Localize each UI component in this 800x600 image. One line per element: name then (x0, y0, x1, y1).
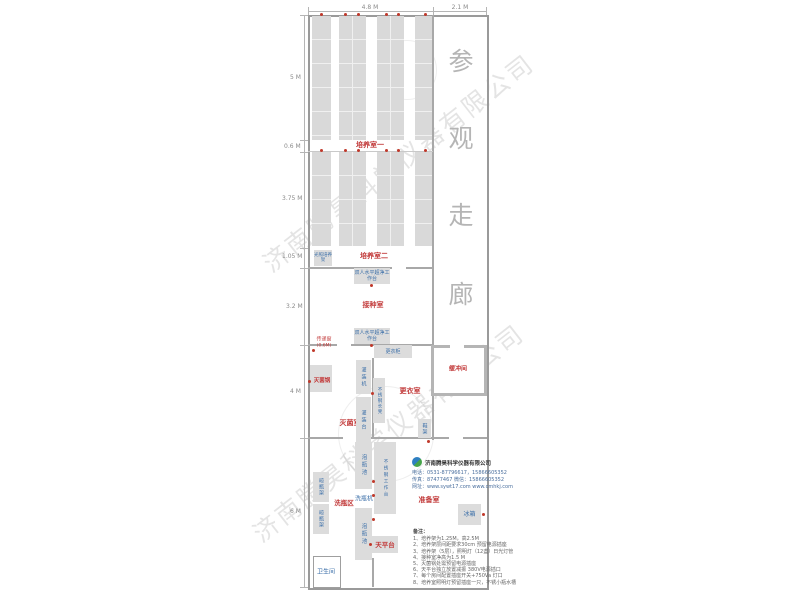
marker-dot (397, 13, 400, 16)
shelf-rack (377, 152, 404, 246)
stainless-worktable-box: 不锈钢工作台 (374, 442, 396, 514)
room-label-culture2: 培养室二 (360, 251, 388, 261)
door-gap (337, 343, 351, 347)
drying-rack-2: 晾瓶架 (313, 504, 329, 534)
marker-dot (308, 380, 311, 383)
fridge-box: 冰箱 (458, 504, 481, 525)
marker-dot (385, 149, 388, 152)
marker-dot (482, 513, 485, 516)
dim-top-left-label: 4.8 M (360, 4, 381, 11)
dim-top-right-label: 2.1 M (450, 4, 471, 11)
marker-dot (357, 13, 360, 16)
dim-tick (300, 438, 308, 439)
dim-left-7: 6 M (290, 508, 301, 515)
dim-tick (300, 248, 308, 249)
door-gap (450, 387, 464, 393)
pass-window-label: 传递窗 (316, 336, 331, 343)
laminar-flow-bench-1: 双人水平超净工作台 (354, 268, 390, 284)
dim-tick (486, 7, 487, 15)
corridor-label-char: 参 (448, 42, 473, 78)
marker-dot (320, 13, 323, 16)
marker-dot (357, 149, 360, 152)
corridor-wall (432, 15, 434, 345)
wall (432, 396, 434, 440)
corridor-label-char: 廊 (448, 275, 473, 311)
dim-tick (300, 345, 308, 346)
door-gap (450, 343, 464, 349)
room-label-toilet: 卫生间 (317, 567, 335, 576)
dim-left-2: 0.6 M (284, 143, 301, 150)
dim-line-top-left (308, 11, 433, 12)
pass-window-size: (0.6M) (317, 344, 332, 349)
filling-table-box: 灌装台 (356, 397, 371, 443)
room-label-buffer: 缓冲间 (449, 364, 467, 373)
shelf-rack (312, 16, 331, 140)
door-gap (343, 436, 357, 440)
floor-plan: 济南腾昊科学仪器有限公司 济南腾昊科学仪器有限公司 4.8 M 2.1 M 5 … (0, 0, 800, 600)
door-gap (392, 266, 406, 270)
marker-dot (369, 543, 372, 546)
dim-line-top-right (433, 11, 487, 12)
shelf-rack (339, 152, 366, 246)
marker-dot (312, 349, 315, 352)
drying-rack-1: 晾瓶架 (313, 472, 329, 502)
soaking-pool-1: 泡瓶池 (355, 442, 372, 489)
marker-dot (372, 518, 375, 521)
marker-dot (344, 13, 347, 16)
marker-dot (370, 284, 373, 287)
bottle-washer-label: 洗瓶机 (355, 494, 373, 503)
marker-dot (370, 344, 373, 347)
dim-tick (300, 15, 308, 16)
shoe-rack-box: 鞋架 (418, 419, 431, 438)
room-label-inoculation: 接种室 (363, 300, 384, 310)
corridor-label-char: 观 (448, 119, 473, 155)
room-label-culture1: 培养室一 (356, 140, 384, 150)
shelf-rack (312, 152, 331, 246)
shelf-rack (415, 152, 432, 246)
company-phone: 电话：0531-87796617，15866605352 (412, 470, 507, 477)
stainless-bench-box: 不锈钢长凳 (373, 378, 385, 423)
notes-block: 备注： 1、培养架为1.25M，高2.5M 2、培养架层间距要求30cm 预留电… (413, 529, 516, 586)
company-name: 济南腾昊科学仪器有限公司 (425, 459, 491, 467)
dim-tick (300, 140, 308, 141)
dim-left-6: 4 M (290, 388, 301, 395)
marker-dot (372, 494, 375, 497)
dim-left-3: 3.75 M (282, 195, 302, 202)
note-item: 7、每个房间配置插座开关+750Va 灯口 (413, 573, 516, 579)
marker-dot (385, 13, 388, 16)
marker-dot (371, 392, 374, 395)
dim-line-left (304, 15, 305, 588)
marker-dot (397, 149, 400, 152)
dim-tick (308, 7, 309, 15)
dim-tick (433, 7, 434, 15)
room-label-prep: 准备室 (419, 495, 440, 505)
room-label-changing: 更衣室 (400, 386, 421, 396)
door-gap (449, 436, 463, 440)
note-item: 8、培养室照明灯预留插座一只，不锈小瓶水槽 (413, 580, 516, 586)
room-label-washing: 洗瓶区 (334, 497, 354, 507)
marker-dot (427, 440, 430, 443)
note-item: 2、培养架层间距要求30cm 预留电源插座 (413, 542, 516, 548)
company-logo-icon (412, 457, 422, 467)
dim-tick (300, 587, 308, 588)
shelf-rack (415, 16, 432, 140)
filling-machine-box: 灌装机 (356, 360, 371, 394)
notes-title: 备注： (413, 529, 516, 535)
light-culture-rack: 光照培养架 (314, 250, 332, 266)
laminar-flow-bench-2: 双人水平超净工作台 (354, 328, 390, 344)
balance-table-label: 天平台 (375, 539, 395, 549)
dim-left-4: 1.05 M (282, 253, 302, 260)
wall (372, 558, 374, 587)
marker-dot (424, 13, 427, 16)
shelf-rack (377, 16, 404, 140)
note-item: 3、培养架（5层），照明灯（12盏）日光灯管 (413, 549, 516, 555)
marker-dot (372, 480, 375, 483)
company-website: 网址：www.sywt17.com www.cmhkj.com (412, 484, 513, 491)
dim-left-5: 3.2 M (286, 303, 303, 310)
marker-dot (424, 149, 427, 152)
company-fax: 传真：87477467 微信：15866605352 (412, 477, 504, 484)
shelf-rack (339, 16, 366, 140)
marker-dot (320, 149, 323, 152)
corridor-label-char: 走 (448, 196, 473, 232)
marker-dot (344, 149, 347, 152)
locker-box: 更衣柜 (374, 345, 412, 358)
dim-tick (300, 268, 308, 269)
autoclave-label: 灭菌锅 (314, 376, 331, 384)
dim-tick (300, 152, 308, 153)
dim-left-1: 5 M (290, 74, 301, 81)
